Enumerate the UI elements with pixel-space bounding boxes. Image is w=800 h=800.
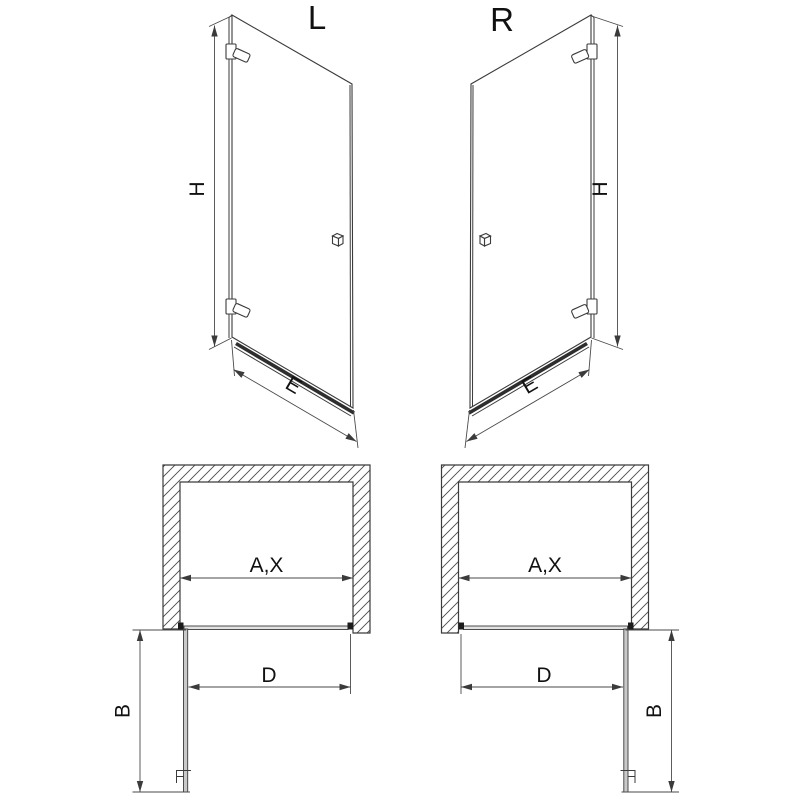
dimension-label-h-left: H: [186, 181, 209, 196]
glass-edge-right: [473, 85, 474, 407]
door-open-plan-right: [621, 629, 636, 792]
dimension-label-d-left: D: [261, 664, 276, 687]
plan-view-left: A,X D B: [112, 465, 371, 792]
dimension-ax-left: A,X: [180, 554, 353, 581]
glass-panel-left: [232, 15, 353, 408]
hinge-marker-plan-left: [178, 623, 184, 630]
plan-view-right: A,X D B: [442, 465, 680, 792]
dimension-label-b-right: B: [643, 704, 666, 718]
dimension-d-left: D: [189, 634, 351, 694]
drawing-canvas: H E L: [0, 0, 800, 800]
variant-label-right: R: [490, 1, 514, 38]
dimension-h-left: H: [186, 16, 232, 350]
dimension-label-d-right: D: [536, 664, 551, 687]
dimension-label-ax-right: A,X: [528, 554, 562, 577]
door-closed-plan-left: [178, 623, 353, 630]
variant-label-left: L: [308, 0, 326, 36]
door-open-plan-left: [177, 629, 192, 792]
handle-knob-left-door: [333, 234, 344, 247]
dimension-b-right: B: [622, 630, 680, 792]
dimension-label-h-right: H: [589, 181, 612, 196]
wall-profile-marker-plan-left: [348, 623, 354, 630]
glass-panel-right: [470, 15, 591, 408]
dimension-label-ax-left: A,X: [250, 554, 284, 577]
wall-plan-right: [442, 465, 649, 633]
door-isometric-right: H E R: [465, 1, 623, 448]
dimension-label-e-right: E: [518, 372, 542, 399]
glass-edge-left: [350, 85, 351, 407]
dimension-ax-right: A,X: [459, 554, 632, 581]
dimension-b-left: B: [112, 630, 191, 792]
dimension-d-right: D: [461, 634, 623, 694]
wall-profile-marker-plan-right: [459, 623, 465, 630]
dimension-label-b-left: B: [112, 704, 135, 718]
door-isometric-left: H E L: [186, 0, 358, 448]
dimension-label-e-left: E: [281, 372, 305, 399]
wall-plan-left: [163, 465, 370, 633]
handle-knob-right-door: [480, 234, 491, 247]
hinge-marker-plan-right: [628, 623, 634, 630]
shower-door-technical-drawing: H E L: [0, 0, 800, 800]
door-closed-plan-right: [459, 623, 634, 630]
